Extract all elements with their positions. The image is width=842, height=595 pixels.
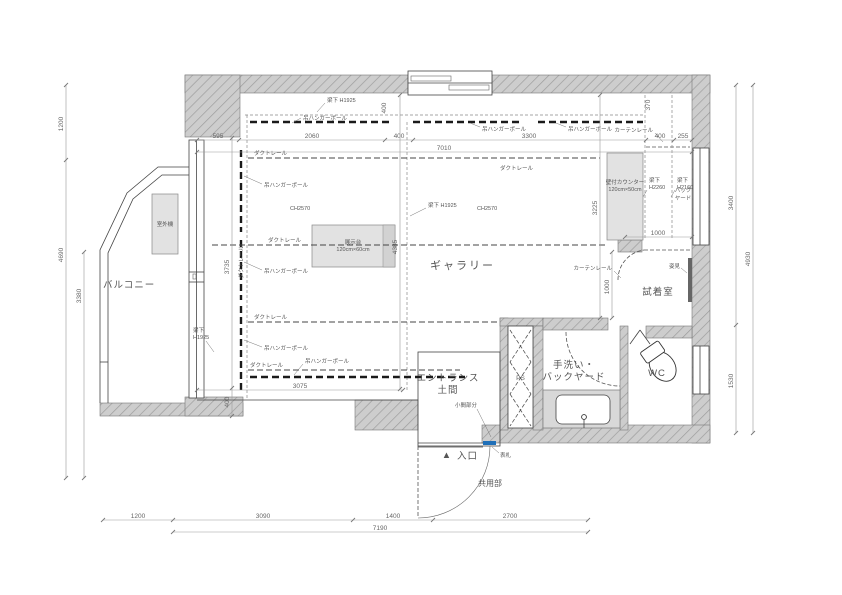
hanger-label-6: 吊ハンガーポール bbox=[264, 344, 309, 352]
duct-label-3: ダクトレール bbox=[268, 236, 302, 244]
ch-label-1: CH2570 bbox=[290, 206, 310, 212]
nameplate: 表札 bbox=[483, 441, 512, 459]
wall-counter: 壁付カウンター 120cm×50cm bbox=[606, 153, 645, 240]
window-left bbox=[189, 140, 204, 398]
curtain-label-top: カーテンレール bbox=[614, 127, 653, 134]
dim-left-4690: 4690 bbox=[58, 247, 65, 262]
hanger-label-3: 吊ハンガーポール bbox=[568, 125, 613, 133]
hanger-label-2: 吊ハンガーポール bbox=[482, 125, 527, 133]
beam-lines bbox=[245, 95, 672, 398]
dim-offset-400: 400 bbox=[381, 102, 388, 113]
floor-plan-drawing: 室外機 バルコニー 展示台 120cm×60cm 壁付カウンター 120cm×5… bbox=[0, 0, 842, 595]
entry-marker-icon: ▲ bbox=[442, 450, 452, 461]
dim-gallery-width: 3075 bbox=[293, 383, 308, 390]
dim-gallery-depth: 4385 bbox=[392, 239, 399, 254]
beam-label-mid: 梁下 H1925 bbox=[428, 201, 457, 209]
room-labels: ギャラリー エントランス 土間 試着室 WC 手洗い・ バックヤード 共用部 入… bbox=[417, 259, 674, 488]
dim-bottom-total: 7190 bbox=[373, 525, 388, 532]
dim-top-595: 595 bbox=[213, 133, 224, 140]
dimension-lines: 595 2060 400 3300 400 255 7010 400 370 1… bbox=[58, 83, 755, 534]
room-label-wash-1: 手洗い・ bbox=[553, 359, 595, 371]
wash-counter-sink bbox=[543, 390, 620, 428]
dim-right-1530: 1530 bbox=[728, 373, 735, 388]
hanger-label-4: 吊ハンガーポール bbox=[264, 181, 309, 189]
beam-2260-l1: 梁下 bbox=[649, 176, 661, 184]
backyard-label-l1: バック bbox=[675, 187, 692, 194]
backyard-label-l2: ヤード bbox=[675, 196, 692, 202]
room-label-entrance-2: 土間 bbox=[437, 384, 458, 396]
room-label-balcony: バルコニー bbox=[103, 280, 155, 291]
pipe-shaft-label: PS bbox=[516, 375, 525, 382]
hanger-poles bbox=[241, 122, 643, 394]
room-label-wash-2: バックヤード bbox=[542, 372, 605, 383]
mirror-label: 姿見 bbox=[669, 262, 681, 270]
wall-counter-label: 壁付カウンター bbox=[606, 178, 645, 186]
duct-label-vertical: ダクトレール bbox=[237, 245, 245, 279]
hanger-label-1: 吊ハンガーポール bbox=[303, 114, 348, 122]
outdoor-unit-label: 室外機 bbox=[157, 220, 174, 228]
dim-gallery-left: 3735 bbox=[224, 259, 231, 274]
faucet-icon bbox=[582, 415, 587, 420]
room-label-wc: WC bbox=[648, 368, 666, 379]
dim-top-400a: 400 bbox=[394, 133, 405, 140]
dim-bottom-1200: 1200 bbox=[131, 513, 146, 520]
duct-label-4: ダクトレール bbox=[254, 313, 288, 321]
dim-counter-depth: 3225 bbox=[592, 200, 599, 215]
dim-top-2060: 2060 bbox=[305, 133, 320, 140]
booth-note-label: 小間部分 bbox=[455, 401, 478, 409]
display-table: 展示台 120cm×60cm bbox=[312, 225, 395, 267]
duct-label-2: ダクトレール bbox=[500, 164, 534, 172]
curtain-label-fitting: カーテンレール bbox=[573, 265, 612, 272]
dim-bottom-3090: 3090 bbox=[256, 513, 271, 520]
nameplate-label: 表札 bbox=[500, 451, 512, 459]
entry-label: 入口 bbox=[457, 451, 478, 462]
ch-label-2: CH2570 bbox=[477, 206, 497, 212]
duct-rails bbox=[212, 158, 605, 370]
beam-label-top: 梁下 H1925 bbox=[327, 96, 356, 104]
beam-2160-l1: 梁下 bbox=[677, 176, 689, 184]
dim-right-3400: 3400 bbox=[728, 195, 735, 210]
room-label-gallery: ギャラリー bbox=[430, 259, 495, 272]
room-label-fitting: 試着室 bbox=[642, 286, 674, 298]
duct-label-1: ダクトレール bbox=[254, 149, 288, 157]
window-top bbox=[408, 71, 492, 95]
duct-label-5: ダクトレール bbox=[250, 361, 284, 369]
balcony-outline: 室外機 バルコニー bbox=[100, 167, 189, 403]
dim-top-400b: 400 bbox=[655, 133, 666, 140]
dim-top-3300: 3300 bbox=[522, 133, 537, 140]
toilet-icon bbox=[639, 340, 682, 387]
beam-2260-l2: H2260 bbox=[649, 185, 665, 191]
beam-bl-l1: 梁下 bbox=[193, 326, 205, 334]
dim-bottom-2700: 2700 bbox=[503, 513, 518, 520]
dim-niche-370: 370 bbox=[645, 99, 652, 110]
wall-counter-size: 120cm×50cm bbox=[608, 187, 642, 193]
dim-bottom-1400: 1400 bbox=[386, 513, 401, 520]
dim-left-3380: 3380 bbox=[76, 288, 83, 303]
room-label-common: 共用部 bbox=[478, 478, 502, 488]
display-table-size: 120cm×60cm bbox=[336, 247, 370, 253]
dim-right-4930: 4930 bbox=[745, 251, 752, 266]
pipe-shaft: PS bbox=[508, 326, 533, 428]
hanger-label-5: 吊ハンガーポール bbox=[264, 267, 309, 275]
dim-left-1200: 1200 bbox=[58, 116, 65, 131]
hanger-label-7: 吊ハンガーポール bbox=[305, 357, 350, 365]
dim-fitting-w: 1000 bbox=[651, 230, 666, 237]
floor-plan-page: 室外機 バルコニー 展示台 120cm×60cm 壁付カウンター 120cm×5… bbox=[0, 0, 842, 595]
room-label-entrance-1: エントランス bbox=[417, 373, 480, 384]
dim-top-total: 7010 bbox=[437, 145, 452, 152]
dim-fitting-d: 1000 bbox=[604, 279, 611, 294]
dim-gallery-left-sub: 400 bbox=[224, 396, 231, 407]
dim-top-255: 255 bbox=[678, 133, 689, 140]
beam-bl-l2: H1925 bbox=[193, 335, 209, 341]
